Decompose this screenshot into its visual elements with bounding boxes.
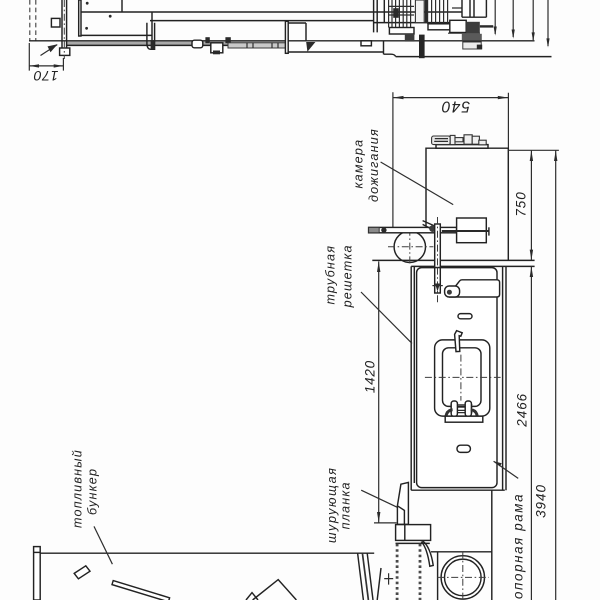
svg-text:планка: планка (338, 481, 352, 529)
svg-text:дожигания: дожигания (367, 128, 381, 202)
svg-text:1420: 1420 (362, 360, 377, 393)
svg-text:трубная: трубная (324, 245, 338, 305)
svg-text:бункер: бункер (85, 468, 99, 515)
svg-text:опорная рама: опорная рама (511, 493, 526, 599)
svg-text:2466: 2466 (515, 393, 530, 428)
svg-text:камера: камера (352, 139, 366, 189)
svg-text:топливный: топливный (70, 449, 84, 528)
svg-text:170: 170 (33, 68, 58, 84)
svg-text:шурующая: шурующая (325, 467, 339, 544)
svg-text:540: 540 (441, 98, 470, 115)
svg-text:решетка: решетка (340, 244, 354, 308)
svg-text:3940: 3940 (534, 484, 549, 518)
svg-text:750: 750 (514, 191, 529, 216)
